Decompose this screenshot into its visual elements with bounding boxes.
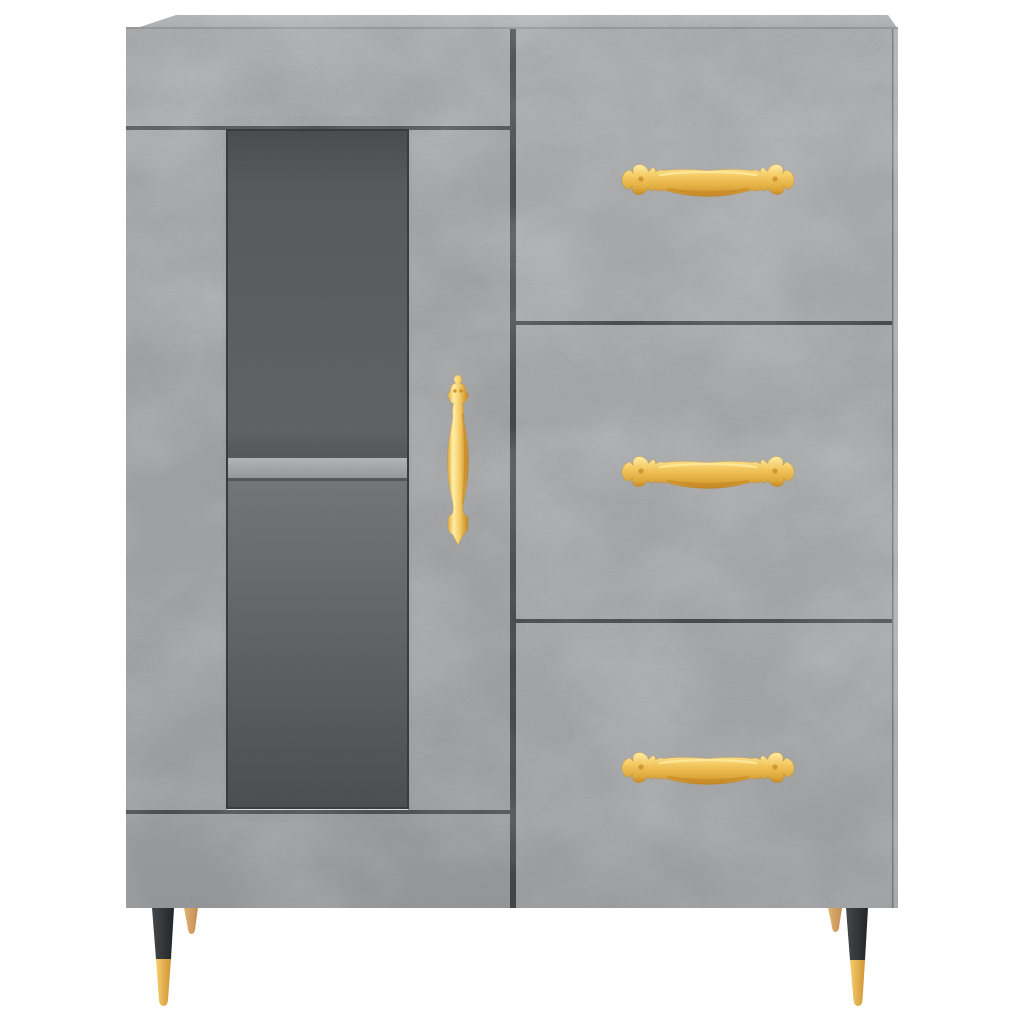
door-handle bbox=[448, 375, 469, 545]
product-image bbox=[0, 0, 1024, 1024]
sideboard-illustration bbox=[0, 0, 1024, 1024]
glass-reflection-texture bbox=[227, 130, 408, 808]
